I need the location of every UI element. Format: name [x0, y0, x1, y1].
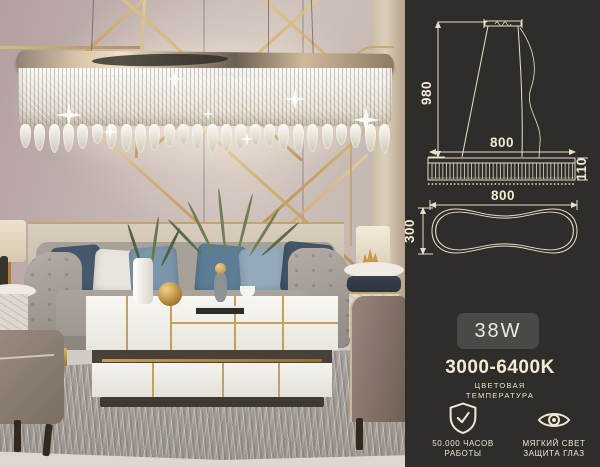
- crystal-drop: [178, 124, 189, 145]
- color-temperature-caption: ЦВЕТОВАЯ ТЕМПЕРАТУРА: [405, 381, 595, 401]
- gold-inlay: [152, 363, 154, 397]
- room-photo: [0, 0, 405, 467]
- crystal-drop: [135, 124, 146, 153]
- shield-check-icon: [448, 402, 478, 435]
- side-table-dark-band: [347, 276, 401, 292]
- crystal-drop: [235, 124, 246, 150]
- crystal-drop: [63, 124, 74, 152]
- chandelier-crystal-body: [18, 68, 392, 126]
- dimension-label-width: 800: [490, 135, 514, 150]
- book-stack: [196, 306, 244, 314]
- coffee-table-lower-shelf: [92, 363, 332, 397]
- coffee-table-plinth: [100, 397, 324, 407]
- top-view-diagram: 800 300: [405, 188, 600, 270]
- crystal-drop: [264, 124, 275, 147]
- crystal-drop: [207, 124, 218, 153]
- crystal-drop: [278, 124, 289, 151]
- crystal-drop: [164, 124, 175, 147]
- coffee-table-top: [86, 296, 338, 350]
- crystal-drop: [34, 124, 45, 151]
- power-badge: 38W: [457, 313, 539, 349]
- gold-sphere-vase: [158, 282, 182, 306]
- crystal-drop: [336, 124, 347, 145]
- figurine-gold-head: [215, 263, 226, 274]
- armchair-right: [350, 296, 405, 422]
- crystal-drop: [121, 124, 132, 152]
- gold-inlay: [222, 363, 224, 397]
- crystal-drop-row: [20, 124, 390, 153]
- armchair-leg: [356, 418, 363, 450]
- gold-inlay: [102, 359, 322, 362]
- white-vase: [133, 258, 153, 304]
- gold-inlay: [126, 296, 128, 350]
- product-card: 980 800 110 800 300 38W: [0, 0, 600, 467]
- armchair-leg: [14, 420, 21, 452]
- dimension-label-depth: 300: [405, 219, 417, 243]
- crystal-chandelier: [16, 44, 394, 154]
- side-view-diagram: 980 800 110: [405, 10, 600, 192]
- crystal-drop: [20, 124, 31, 148]
- eye-icon: [537, 408, 571, 432]
- feature-lifespan: 50.000 ЧАСОВ РАБОТЫ: [417, 402, 509, 459]
- table-lamp-shade: [356, 226, 390, 264]
- crystal-drop: [307, 124, 318, 152]
- crystal-drop: [322, 124, 333, 149]
- color-temperature-value: 3000-6400K: [405, 357, 595, 379]
- dimension-label-body-height: 110: [574, 157, 589, 180]
- armchair-left: [0, 330, 64, 424]
- figurine: [214, 272, 227, 302]
- crystal-drop: [250, 124, 261, 146]
- gold-inlay: [170, 322, 338, 324]
- crystal-drop: [92, 124, 103, 144]
- dimension-label-height: 980: [419, 81, 434, 105]
- gold-inlay: [278, 363, 280, 397]
- feature-soft-light: МЯГКИЙ СВЕТ ЗАЩИТА ГЛАЗ: [511, 402, 597, 459]
- crystal-drop: [379, 124, 390, 153]
- crystal-drop: [106, 124, 117, 149]
- crystal-drop: [221, 124, 232, 153]
- crystal-drop: [192, 124, 203, 150]
- dimension-label-width: 800: [491, 188, 515, 203]
- crystal-drop: [350, 124, 361, 148]
- crystal-drop: [49, 124, 60, 153]
- spec-panel: 980 800 110 800 300 38W: [405, 0, 600, 467]
- crystal-drop: [77, 124, 88, 149]
- crystal-drop: [293, 124, 304, 153]
- crystal-drop: [149, 124, 160, 151]
